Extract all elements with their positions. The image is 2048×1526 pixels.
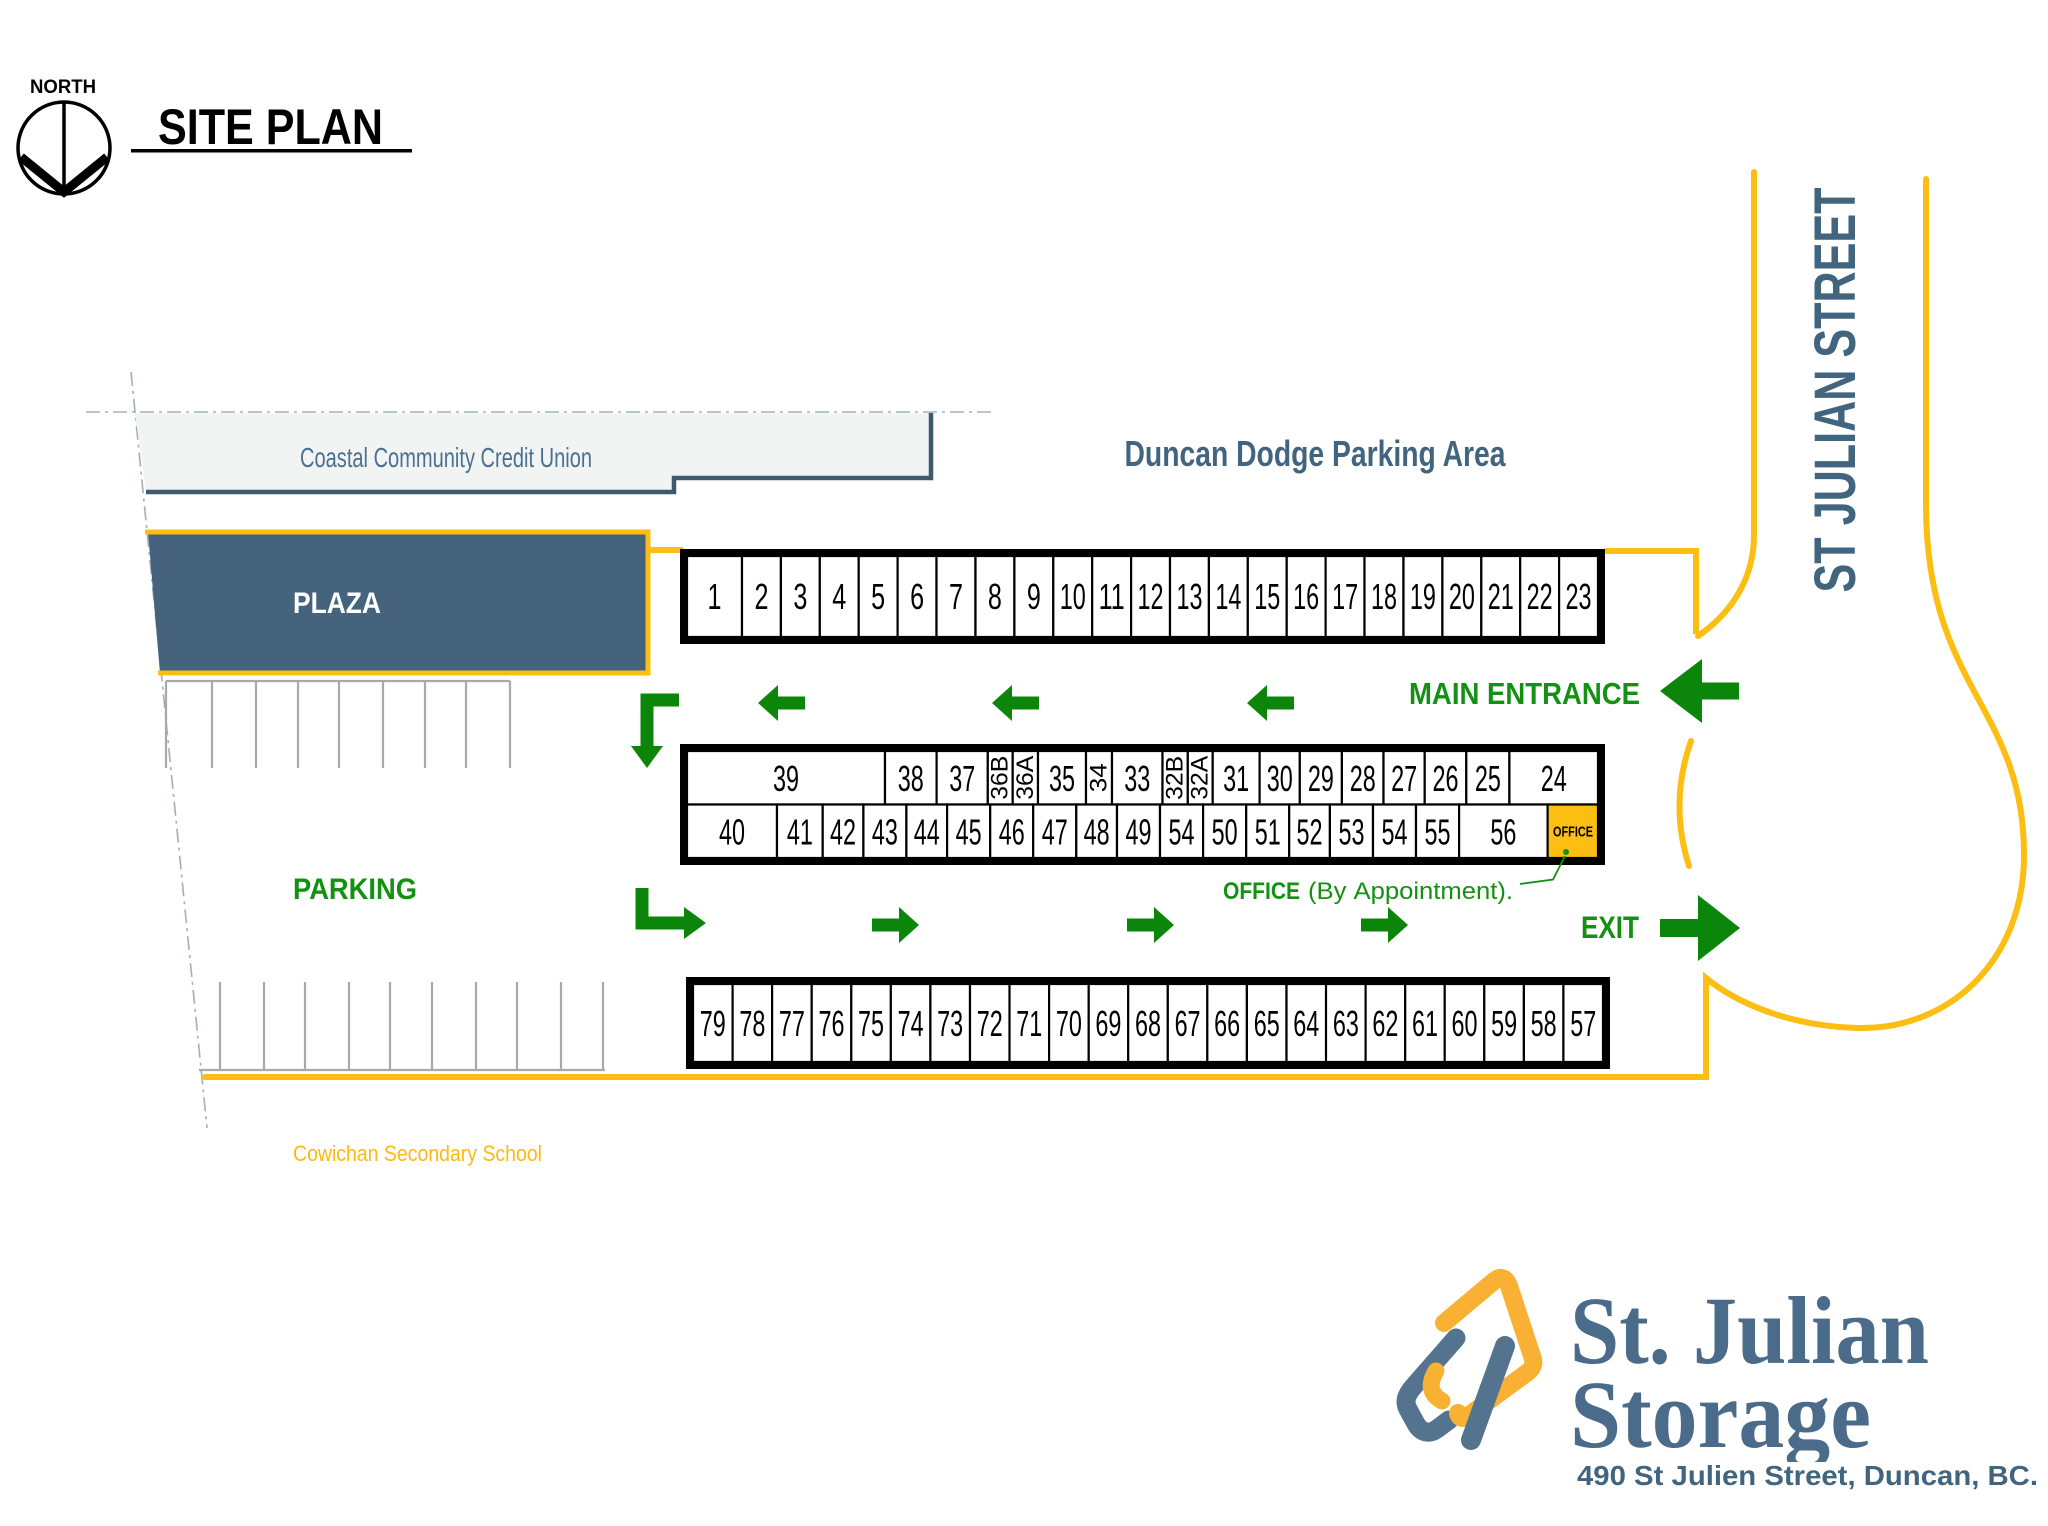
svg-text:70: 70 xyxy=(1056,1003,1082,1044)
svg-text:62: 62 xyxy=(1372,1003,1398,1044)
svg-text:Duncan Dodge Parking Area: Duncan Dodge Parking Area xyxy=(1125,433,1507,474)
svg-text:51: 51 xyxy=(1255,811,1281,852)
svg-text:50: 50 xyxy=(1212,811,1238,852)
svg-text:(By Appointment).: (By Appointment). xyxy=(1308,878,1513,905)
svg-text:25: 25 xyxy=(1475,758,1501,799)
svg-text:78: 78 xyxy=(739,1003,765,1044)
svg-text:8: 8 xyxy=(988,576,1002,617)
svg-text:53: 53 xyxy=(1338,811,1364,852)
svg-text:18: 18 xyxy=(1371,576,1397,617)
svg-text:28: 28 xyxy=(1350,758,1376,799)
svg-text:77: 77 xyxy=(779,1003,805,1044)
svg-text:79: 79 xyxy=(700,1003,726,1044)
svg-text:OFFICE: OFFICE xyxy=(1223,878,1300,905)
svg-text:46: 46 xyxy=(999,811,1025,852)
svg-text:9: 9 xyxy=(1027,576,1041,617)
svg-text:13: 13 xyxy=(1176,576,1202,617)
svg-text:35: 35 xyxy=(1049,758,1075,799)
svg-text:3: 3 xyxy=(793,576,807,617)
svg-text:SITE PLAN: SITE PLAN xyxy=(158,99,383,155)
svg-text:12: 12 xyxy=(1138,576,1164,617)
svg-text:59: 59 xyxy=(1491,1003,1517,1044)
svg-text:27: 27 xyxy=(1391,758,1417,799)
svg-text:42: 42 xyxy=(830,811,856,852)
svg-text:22: 22 xyxy=(1527,576,1553,617)
svg-text:4: 4 xyxy=(832,576,846,617)
svg-text:48: 48 xyxy=(1084,811,1110,852)
svg-text:29: 29 xyxy=(1308,758,1334,799)
svg-text:MAIN ENTRANCE: MAIN ENTRANCE xyxy=(1409,676,1640,711)
svg-text:65: 65 xyxy=(1254,1003,1280,1044)
svg-text:60: 60 xyxy=(1452,1003,1478,1044)
svg-text:20: 20 xyxy=(1449,576,1475,617)
svg-text:36A: 36A xyxy=(1012,756,1039,800)
svg-text:6: 6 xyxy=(910,576,924,617)
svg-text:68: 68 xyxy=(1135,1003,1161,1044)
svg-text:41: 41 xyxy=(787,811,813,852)
svg-text:67: 67 xyxy=(1175,1003,1201,1044)
svg-text:72: 72 xyxy=(977,1003,1003,1044)
svg-text:40: 40 xyxy=(719,811,745,852)
svg-text:32A: 32A xyxy=(1187,756,1214,800)
svg-text:1: 1 xyxy=(708,576,722,617)
svg-text:76: 76 xyxy=(818,1003,844,1044)
svg-text:15: 15 xyxy=(1254,576,1280,617)
svg-text:64: 64 xyxy=(1293,1003,1319,1044)
svg-text:74: 74 xyxy=(898,1003,924,1044)
svg-text:OFFICE: OFFICE xyxy=(1553,824,1593,841)
svg-text:47: 47 xyxy=(1042,811,1068,852)
svg-text:14: 14 xyxy=(1215,576,1241,617)
svg-text:66: 66 xyxy=(1214,1003,1240,1044)
svg-text:71: 71 xyxy=(1016,1003,1042,1044)
svg-text:ST JULIAN STREET: ST JULIAN STREET xyxy=(1803,188,1868,593)
svg-text:PARKING: PARKING xyxy=(293,873,417,906)
svg-text:39: 39 xyxy=(773,758,799,799)
svg-text:55: 55 xyxy=(1425,811,1451,852)
svg-text:32B: 32B xyxy=(1162,756,1189,800)
svg-text:36B: 36B xyxy=(987,756,1014,800)
svg-text:10: 10 xyxy=(1060,576,1086,617)
svg-text:56: 56 xyxy=(1490,811,1516,852)
svg-text:EXIT: EXIT xyxy=(1581,909,1639,945)
svg-text:38: 38 xyxy=(898,758,924,799)
svg-text:34: 34 xyxy=(1085,763,1112,792)
svg-text:19: 19 xyxy=(1410,576,1436,617)
svg-text:52: 52 xyxy=(1297,811,1323,852)
svg-text:33: 33 xyxy=(1124,758,1150,799)
svg-text:75: 75 xyxy=(858,1003,884,1044)
svg-text:2: 2 xyxy=(754,576,768,617)
svg-text:16: 16 xyxy=(1293,576,1319,617)
svg-text:43: 43 xyxy=(872,811,898,852)
svg-text:44: 44 xyxy=(914,811,940,852)
svg-text:57: 57 xyxy=(1570,1003,1596,1044)
svg-text:11: 11 xyxy=(1099,576,1125,617)
svg-text:490 St Julien Street, Duncan,: 490 St Julien Street, Duncan, BC. xyxy=(1577,1460,2038,1491)
svg-text:58: 58 xyxy=(1531,1003,1557,1044)
svg-text:PLAZA: PLAZA xyxy=(293,587,381,620)
svg-text:63: 63 xyxy=(1333,1003,1359,1044)
svg-text:23: 23 xyxy=(1566,576,1592,617)
svg-text:45: 45 xyxy=(956,811,982,852)
svg-text:Coastal Community Credit Union: Coastal Community Credit Union xyxy=(300,442,592,473)
svg-text:61: 61 xyxy=(1412,1003,1438,1044)
svg-text:Storage: Storage xyxy=(1570,1361,1871,1468)
svg-text:30: 30 xyxy=(1267,758,1293,799)
svg-text:54: 54 xyxy=(1382,811,1408,852)
svg-text:5: 5 xyxy=(871,576,885,617)
svg-text:7: 7 xyxy=(949,576,963,617)
svg-text:Cowichan Secondary School: Cowichan Secondary School xyxy=(293,1141,542,1166)
svg-text:73: 73 xyxy=(937,1003,963,1044)
svg-text:49: 49 xyxy=(1126,811,1152,852)
svg-text:69: 69 xyxy=(1095,1003,1121,1044)
svg-text:21: 21 xyxy=(1488,576,1514,617)
svg-text:26: 26 xyxy=(1433,758,1459,799)
svg-text:24: 24 xyxy=(1541,758,1567,799)
svg-text:NORTH: NORTH xyxy=(30,77,96,98)
svg-text:54: 54 xyxy=(1169,811,1195,852)
svg-text:31: 31 xyxy=(1223,758,1249,799)
svg-text:37: 37 xyxy=(949,758,975,799)
svg-text:17: 17 xyxy=(1332,576,1358,617)
